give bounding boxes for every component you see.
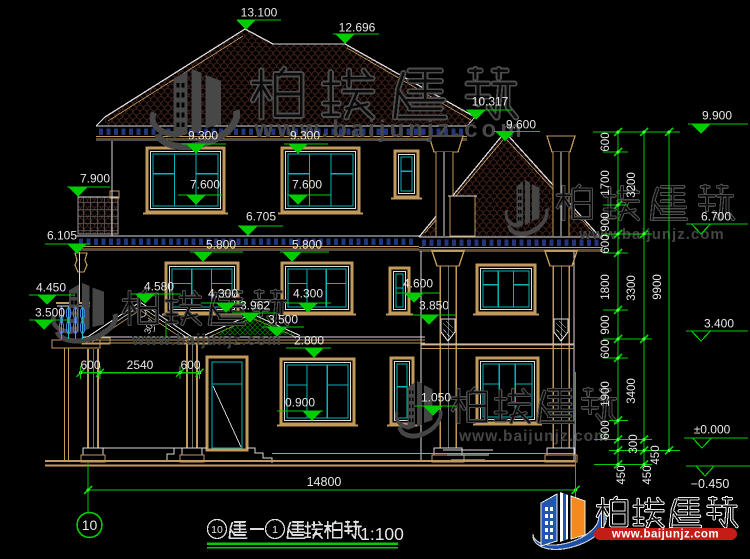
svg-text:900: 900 [600,315,612,334]
svg-text:9.300: 9.300 [188,129,218,143]
svg-text:4.600: 4.600 [403,277,433,291]
svg-text:3.500: 3.500 [268,313,298,327]
svg-text:3.500: 3.500 [35,306,65,320]
svg-text:10: 10 [211,524,223,536]
svg-text:4.580: 4.580 [144,280,174,294]
svg-text:3300: 3300 [626,275,638,301]
svg-text:600: 600 [80,358,100,372]
svg-text:5.800: 5.800 [292,238,322,252]
svg-text:www.baijunjz.com: www.baijunjz.com [611,529,719,541]
svg-text:14800: 14800 [307,475,342,489]
svg-text:www.baijunjz.com: www.baijunjz.com [458,428,609,445]
svg-text:2.800: 2.800 [294,334,324,348]
svg-text:2540: 2540 [127,358,154,372]
svg-text:±0.000: ±0.000 [694,423,731,437]
svg-text:600: 600 [600,132,612,151]
svg-text:900: 900 [600,212,612,231]
svg-text:1800: 1800 [600,274,612,300]
svg-text:1900: 1900 [600,381,612,407]
svg-text:3.962: 3.962 [240,299,270,313]
svg-text:−0.450: −0.450 [691,477,730,491]
svg-text:9.600: 9.600 [506,118,536,132]
svg-text:0.900: 0.900 [285,396,315,410]
svg-text:10: 10 [82,517,98,533]
svg-text:7.600: 7.600 [292,178,322,192]
svg-text:6.705: 6.705 [246,210,276,224]
svg-text:7.900: 7.900 [80,172,110,186]
svg-text:4.300: 4.300 [293,287,323,301]
svg-text:600: 600 [180,358,200,372]
svg-text:9900: 9900 [652,274,664,300]
svg-text:1.050: 1.050 [421,391,451,405]
svg-text:600: 600 [600,234,612,253]
svg-text:13.100: 13.100 [241,6,278,20]
svg-text:6.700: 6.700 [701,210,731,224]
svg-text:7.600: 7.600 [190,178,220,192]
svg-text:4.450: 4.450 [36,281,66,295]
svg-text:5.800: 5.800 [206,238,236,252]
svg-text:3.850: 3.850 [419,299,449,313]
svg-text:10.317: 10.317 [472,95,509,109]
svg-text:1: 1 [272,524,278,536]
svg-text:4.300: 4.300 [208,287,238,301]
svg-text:9.300: 9.300 [290,129,320,143]
svg-text:300: 300 [628,434,640,453]
svg-text:3400: 3400 [626,378,638,404]
svg-text:450: 450 [650,445,662,464]
svg-text:3.400: 3.400 [704,317,734,331]
svg-text:450: 450 [642,465,654,484]
svg-text:1700: 1700 [600,170,612,196]
svg-text:9.900: 9.900 [702,109,732,123]
svg-text:1:100: 1:100 [360,524,404,544]
svg-text:450: 450 [616,465,628,484]
svg-text:12.696: 12.696 [339,21,376,35]
svg-text:3200: 3200 [626,172,638,198]
svg-text:600: 600 [600,420,612,439]
svg-text:600: 600 [600,339,612,358]
svg-text:www.baijunjz.com: www.baijunjz.com [131,332,282,349]
svg-text:6.105: 6.105 [47,229,77,243]
